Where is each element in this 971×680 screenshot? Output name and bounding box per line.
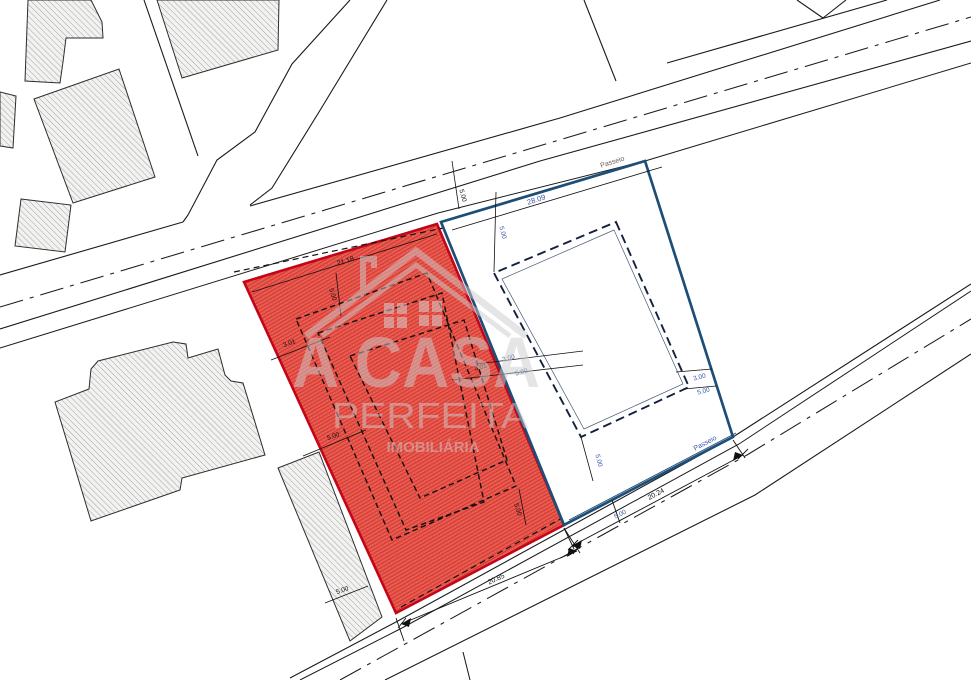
svg-text:A CASA: A CASA bbox=[292, 324, 540, 403]
svg-text:PERFEITA: PERFEITA bbox=[332, 395, 528, 436]
svg-text:IMOBILIÁRIA: IMOBILIÁRIA bbox=[387, 439, 481, 456]
